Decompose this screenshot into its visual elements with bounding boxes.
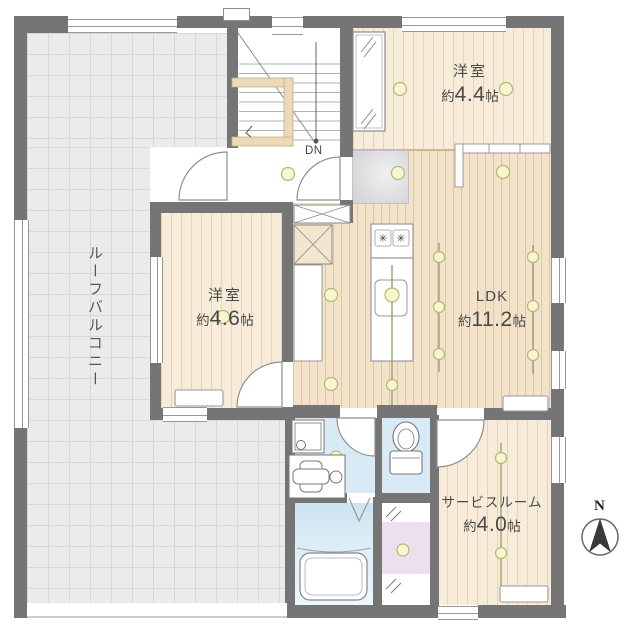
hall-ldk-door-area — [293, 150, 340, 203]
stairwell-floor — [238, 28, 340, 148]
wall — [478, 605, 566, 618]
wall — [287, 605, 438, 618]
service-right-window — [551, 437, 566, 483]
roof-balcony-floor-bottom — [27, 420, 287, 603]
size-value: 4.0 — [477, 513, 508, 536]
wall — [293, 405, 340, 418]
wall — [14, 428, 27, 618]
wall — [150, 213, 161, 257]
wall — [375, 418, 382, 497]
wall — [377, 405, 437, 418]
balcony-railing-left — [14, 220, 29, 428]
room-label-ldk: LDK 約11.2帖 — [422, 289, 562, 331]
toilet-floor — [382, 418, 430, 493]
western-4-6-bottom-window — [163, 407, 207, 422]
room-name: 洋室 — [155, 288, 295, 305]
wall — [14, 16, 27, 220]
size-unit: 帖 — [485, 89, 499, 104]
balcony-door-opening — [227, 148, 238, 200]
size-prefix: 約 — [196, 313, 210, 328]
size-prefix: 約 — [458, 314, 472, 329]
size-unit: 帖 — [240, 313, 254, 328]
size-prefix: 約 — [463, 519, 477, 534]
size-value: 4.4 — [455, 83, 486, 106]
roof-balcony-floor-top — [27, 33, 227, 147]
room-label-western-4-4: 洋室 約4.4帖 — [400, 64, 540, 106]
room-size: 約4.4帖 — [400, 83, 540, 106]
room-name: サービスルーム — [412, 496, 572, 511]
room-size: 約4.0帖 — [412, 513, 572, 536]
wall — [150, 408, 163, 420]
room-size: 約11.2帖 — [422, 308, 562, 331]
room-name: 洋室 — [400, 64, 540, 81]
balcony-open-edge — [27, 603, 287, 616]
stairs-down-label: DN — [305, 145, 323, 157]
wall — [340, 16, 353, 157]
size-prefix: 約 — [441, 89, 455, 104]
room-label-service: サービスルーム 約4.0帖 — [412, 496, 572, 536]
wall — [207, 408, 293, 420]
wall — [150, 363, 161, 408]
room-label-western-4-6: 洋室 約4.6帖 — [155, 288, 295, 330]
service-door-opening — [437, 408, 484, 420]
wall — [373, 497, 382, 607]
wall — [285, 415, 295, 607]
ldk-right-window-2 — [551, 351, 566, 389]
wall — [285, 493, 347, 503]
balcony-railing-top — [68, 19, 177, 33]
washroom-floor — [293, 418, 375, 493]
room-name: LDK — [422, 289, 562, 306]
size-value: 11.2 — [471, 308, 512, 331]
floor-plan: ✳ ✳ — [0, 0, 633, 640]
wall — [227, 20, 238, 148]
stairwell-window — [272, 17, 303, 35]
wall — [551, 16, 564, 258]
wall — [282, 203, 293, 362]
compass-icon — [582, 519, 618, 555]
wall — [484, 408, 553, 420]
size-unit: 帖 — [507, 519, 521, 534]
wall — [150, 202, 293, 213]
western-4-4-top-window — [402, 17, 506, 32]
room-size: 約4.6帖 — [155, 307, 295, 330]
compass-north-label: N — [594, 498, 605, 515]
size-value: 4.6 — [210, 307, 241, 330]
roof-balcony-label: ルーフバルコニー — [84, 245, 105, 389]
refrigerator-space — [352, 150, 409, 204]
wall-protrusion-box — [223, 8, 250, 21]
balcony-door-landing — [150, 147, 227, 203]
balcony-edge-line — [27, 616, 287, 618]
wall — [340, 200, 353, 223]
service-bottom-window — [438, 606, 478, 620]
bathroom-floor — [295, 503, 373, 605]
size-unit: 帖 — [513, 314, 527, 329]
